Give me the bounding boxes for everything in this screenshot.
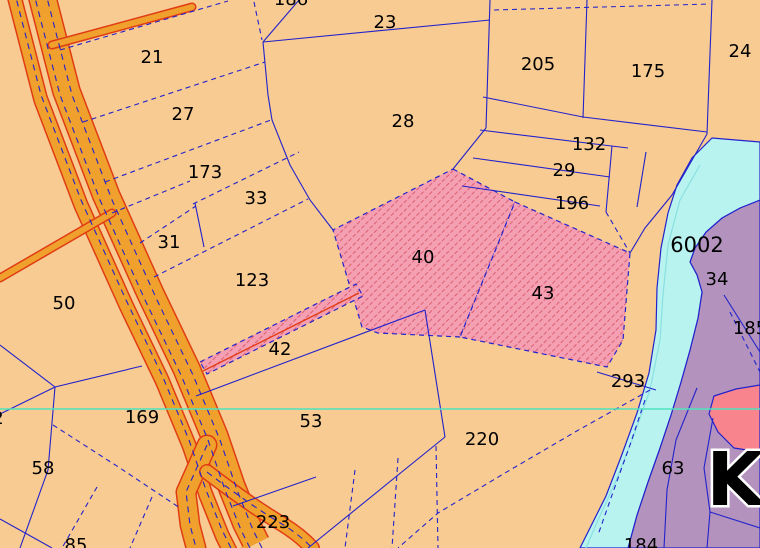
cadastral-map-canvas[interactable]: 1862123205175242728132173293319631600240…	[0, 0, 760, 548]
parcel-number-label: 27	[172, 104, 195, 125]
parcel-number-label: 223	[256, 512, 290, 533]
parcel-number-label: 169	[125, 407, 159, 428]
place-name-label: K	[706, 437, 760, 523]
parcel-number-label: 184	[624, 535, 658, 548]
parcel-number-label: 33	[245, 188, 268, 209]
parcel-number-label: 23	[374, 12, 397, 33]
parcel-number-label: 293	[611, 371, 645, 392]
parcel-number-label: 185	[733, 318, 760, 339]
parcel-number-label: 50	[53, 293, 76, 314]
parcel-number-label: 85	[65, 535, 88, 548]
parcel-number-label: 34	[706, 269, 729, 290]
parcel-number-label: 6002	[670, 233, 723, 257]
parcel-number-label: 186	[274, 0, 308, 10]
parcel-number-label: 29	[553, 160, 576, 181]
parcel-number-label: 132	[572, 134, 606, 155]
parcel-number-label: 28	[392, 111, 415, 132]
parcel-number-label: 58	[32, 458, 55, 479]
parcel-number-label: 42	[269, 339, 292, 360]
parcel-number-label: 53	[300, 411, 323, 432]
parcel-number-label: 175	[631, 61, 665, 82]
parcel-number-label: 21	[141, 47, 164, 68]
parcel-number-label: 40	[412, 247, 435, 268]
parcel-number-label: 63	[662, 458, 685, 479]
parcel-number-label: 43	[532, 283, 555, 304]
parcel-number-label: 220	[465, 429, 499, 450]
parcel-number-label: 205	[521, 54, 555, 75]
parcel-number-label: 31	[158, 232, 181, 253]
map-viewport[interactable]: 1862123205175242728132173293319631600240…	[0, 0, 760, 548]
parcel-number-label: 2	[0, 408, 4, 429]
parcel-number-label: 173	[188, 162, 222, 183]
parcel-number-label: 123	[235, 270, 269, 291]
parcel-number-label: 24	[729, 41, 752, 62]
parcel-number-label: 196	[555, 193, 589, 214]
